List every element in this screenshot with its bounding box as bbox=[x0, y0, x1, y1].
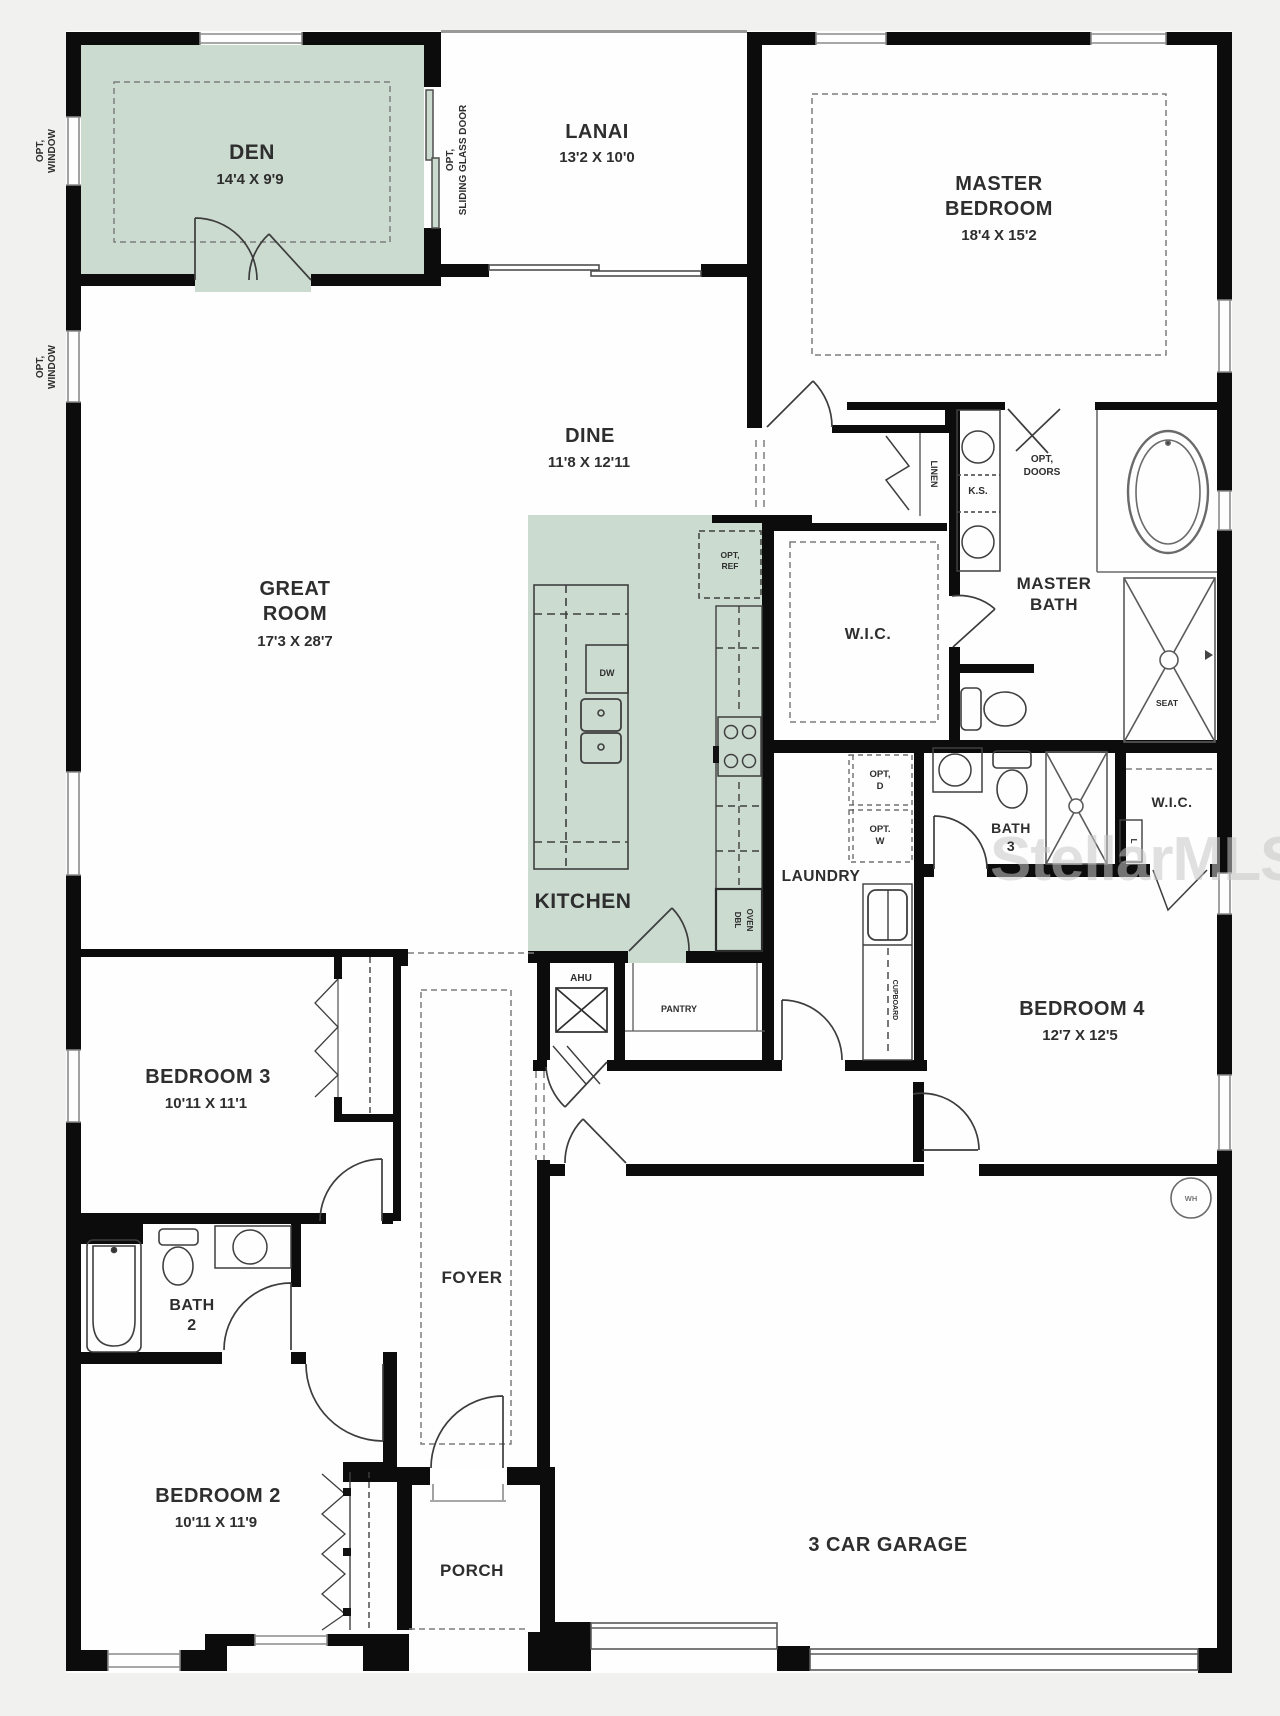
svg-text:DINE: DINE bbox=[565, 425, 615, 447]
svg-text:WH: WH bbox=[1185, 1194, 1198, 1203]
svg-text:GREAT: GREAT bbox=[259, 578, 330, 600]
svg-text:17'3 X 28'7: 17'3 X 28'7 bbox=[257, 633, 333, 650]
svg-text:W: W bbox=[876, 836, 885, 847]
svg-text:DBL: DBL bbox=[733, 912, 742, 929]
svg-text:CUPBOARD: CUPBOARD bbox=[891, 980, 898, 1020]
svg-text:BATH: BATH bbox=[991, 820, 1031, 836]
svg-text:10'11 X 11'1: 10'11 X 11'1 bbox=[165, 1095, 247, 1112]
svg-text:FOYER: FOYER bbox=[441, 1268, 502, 1287]
svg-text:K.S.: K.S. bbox=[968, 486, 988, 497]
svg-text:BATH: BATH bbox=[1030, 595, 1078, 614]
svg-text:11'8 X 12'11: 11'8 X 12'11 bbox=[548, 454, 630, 471]
svg-text:OPT,: OPT, bbox=[35, 356, 46, 378]
svg-text:DOORS: DOORS bbox=[1024, 467, 1061, 478]
svg-text:OPT,: OPT, bbox=[35, 140, 46, 162]
svg-text:13'2 X 10'0: 13'2 X 10'0 bbox=[559, 149, 635, 166]
svg-text:14'4 X 9'9: 14'4 X 9'9 bbox=[216, 171, 283, 188]
svg-text:2: 2 bbox=[187, 1317, 196, 1334]
svg-text:3 CAR GARAGE: 3 CAR GARAGE bbox=[808, 1534, 967, 1556]
svg-text:ROOM: ROOM bbox=[263, 603, 327, 625]
svg-text:D: D bbox=[877, 781, 884, 792]
svg-text:LAUNDRY: LAUNDRY bbox=[782, 868, 861, 885]
svg-text:OPT,: OPT, bbox=[869, 769, 890, 780]
svg-text:BEDROOM: BEDROOM bbox=[945, 198, 1053, 220]
svg-text:BATH: BATH bbox=[169, 1297, 214, 1314]
svg-text:BEDROOM 3: BEDROOM 3 bbox=[145, 1066, 271, 1088]
svg-text:StellarMLS: StellarMLS bbox=[990, 825, 1280, 894]
svg-text:BEDROOM 2: BEDROOM 2 bbox=[155, 1485, 281, 1507]
svg-text:10'11 X 11'9: 10'11 X 11'9 bbox=[175, 1514, 257, 1531]
svg-text:AHU: AHU bbox=[570, 973, 592, 984]
svg-text:BEDROOM 4: BEDROOM 4 bbox=[1019, 998, 1145, 1020]
svg-text:OVEN: OVEN bbox=[745, 909, 754, 932]
svg-text:W.I.C.: W.I.C. bbox=[845, 626, 892, 643]
svg-text:SLIDING GLASS DOOR: SLIDING GLASS DOOR bbox=[458, 104, 469, 215]
svg-text:SEAT: SEAT bbox=[1156, 698, 1179, 708]
svg-text:3: 3 bbox=[1007, 838, 1015, 854]
svg-text:PANTRY: PANTRY bbox=[661, 1004, 697, 1014]
svg-text:OPT,: OPT, bbox=[721, 550, 740, 560]
svg-text:L: L bbox=[1129, 839, 1138, 844]
svg-text:REF: REF bbox=[722, 561, 739, 571]
svg-text:LANAI: LANAI bbox=[565, 121, 629, 143]
svg-text:OPT.: OPT. bbox=[869, 824, 890, 835]
svg-text:WINDOW: WINDOW bbox=[47, 345, 58, 389]
svg-text:W.I.C.: W.I.C. bbox=[1151, 794, 1192, 810]
svg-text:LINEN: LINEN bbox=[929, 461, 939, 488]
svg-text:WINDOW: WINDOW bbox=[47, 129, 58, 173]
svg-text:MASTER: MASTER bbox=[955, 173, 1043, 195]
svg-text:PORCH: PORCH bbox=[440, 1561, 504, 1580]
svg-text:DEN: DEN bbox=[229, 141, 275, 164]
svg-text:OPT,: OPT, bbox=[1031, 454, 1053, 465]
svg-text:DW: DW bbox=[600, 668, 615, 678]
svg-text:OPT,: OPT, bbox=[445, 149, 456, 171]
svg-text:KITCHEN: KITCHEN bbox=[535, 890, 632, 913]
svg-text:MASTER: MASTER bbox=[1017, 574, 1092, 593]
svg-text:12'7 X 12'5: 12'7 X 12'5 bbox=[1042, 1027, 1118, 1044]
svg-text:18'4 X 15'2: 18'4 X 15'2 bbox=[961, 227, 1037, 244]
